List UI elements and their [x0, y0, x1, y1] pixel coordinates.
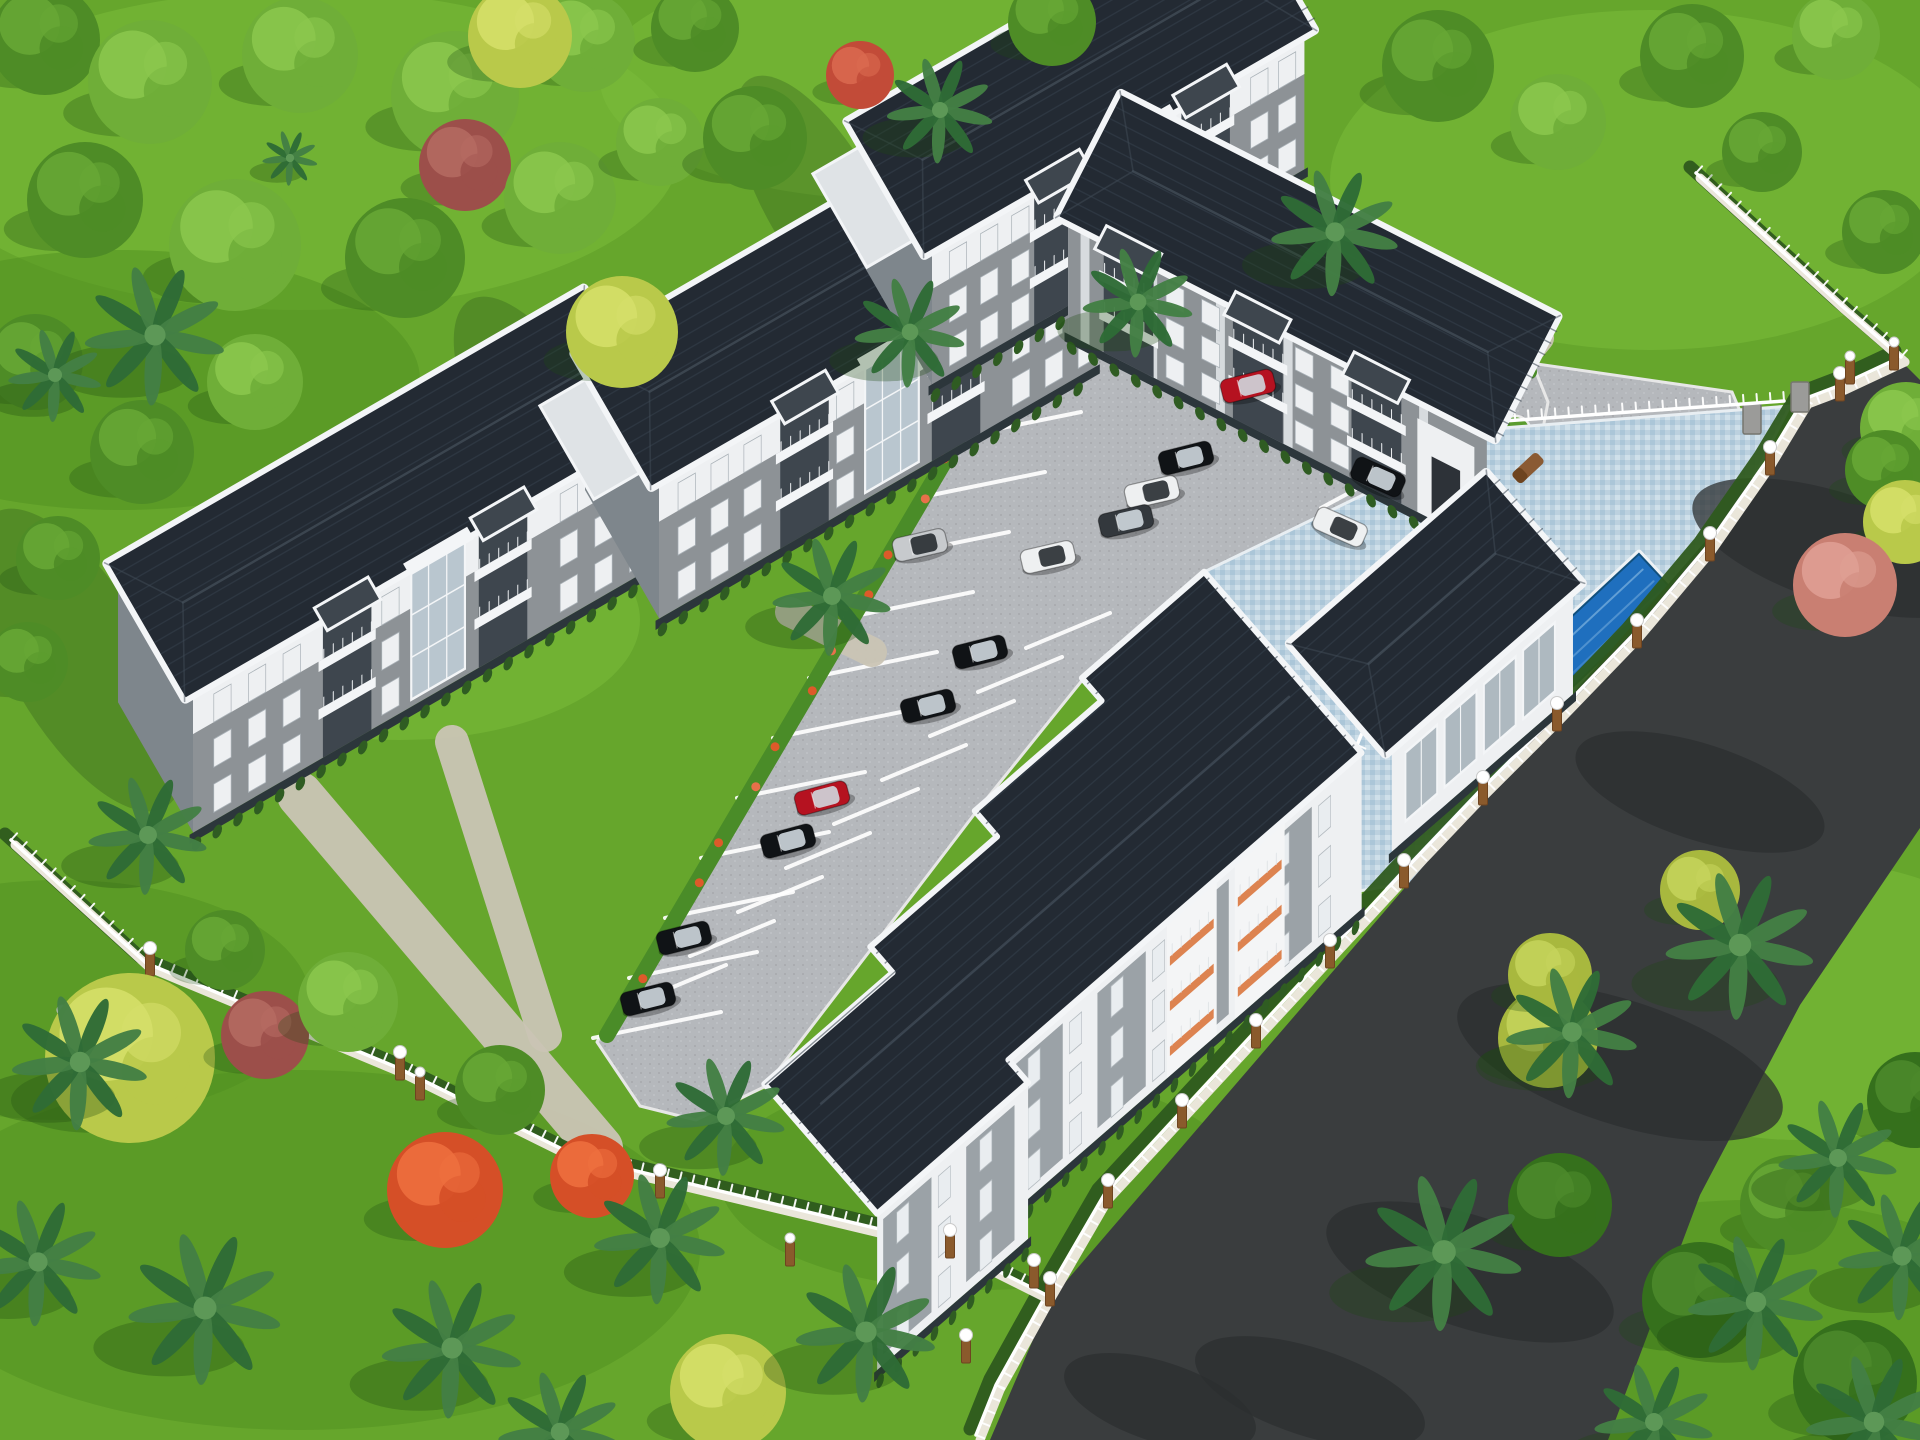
lamp-post	[1764, 441, 1777, 476]
lamp-post	[1889, 337, 1899, 370]
flower	[638, 974, 647, 983]
gate-pillar	[1743, 404, 1761, 434]
lamp-post	[1324, 934, 1337, 969]
lamp-post	[1102, 1174, 1115, 1209]
flower	[695, 878, 704, 887]
flower	[884, 550, 893, 559]
lamp-post	[1044, 1272, 1057, 1307]
lamp-post	[1551, 697, 1564, 732]
aerial-render: Aerial 3D architectural rendering of a g…	[0, 0, 1920, 1440]
lamp-post	[960, 1329, 973, 1364]
lamp-post	[1398, 854, 1411, 889]
lamp-post	[1631, 614, 1644, 649]
flower	[921, 494, 930, 503]
lamp-post	[144, 942, 157, 977]
lamp-post	[1250, 1014, 1263, 1049]
lamp-post	[415, 1067, 425, 1100]
flower	[808, 686, 817, 695]
lamp-post	[785, 1233, 795, 1266]
lamp-post	[1028, 1254, 1041, 1289]
flower	[714, 838, 723, 847]
flower	[751, 782, 760, 791]
scene-canvas	[0, 0, 1920, 1440]
lamp-post	[1176, 1094, 1189, 1129]
lamp-post	[944, 1224, 957, 1259]
lamp-post	[1704, 527, 1717, 562]
flower	[771, 742, 780, 751]
lamp-post	[394, 1046, 407, 1081]
gate-pillar	[1791, 382, 1809, 412]
lamp-post	[654, 1164, 667, 1199]
lamp-post	[1834, 367, 1847, 402]
lamp-post	[1845, 351, 1855, 384]
lamp-post	[1477, 771, 1490, 806]
